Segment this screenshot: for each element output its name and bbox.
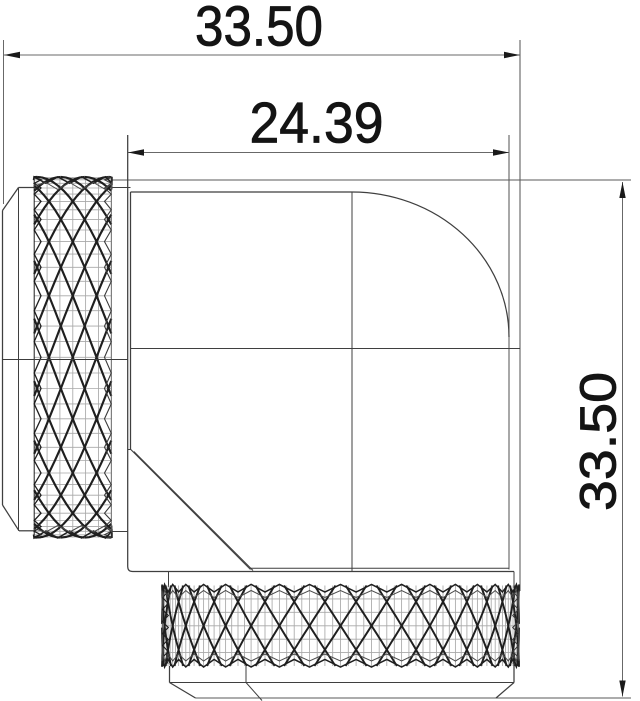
svg-text:33.50: 33.50 <box>195 0 323 58</box>
svg-text:33.50: 33.50 <box>570 372 627 511</box>
svg-text:24.39: 24.39 <box>250 92 384 156</box>
